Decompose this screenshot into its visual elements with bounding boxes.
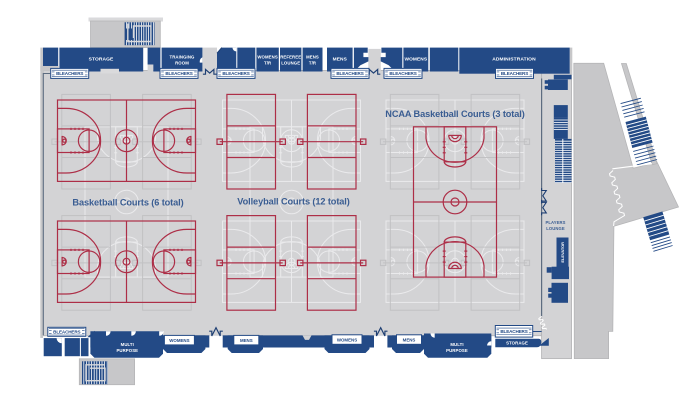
svg-text:TRAINGING: TRAINGING bbox=[169, 55, 195, 60]
svg-text:MENS: MENS bbox=[240, 338, 253, 343]
svg-text:MULTI: MULTI bbox=[121, 342, 134, 347]
svg-text:LOUNGE: LOUNGE bbox=[546, 226, 565, 231]
svg-text:MENS: MENS bbox=[403, 337, 416, 342]
svg-text:PURPOSE: PURPOSE bbox=[116, 348, 138, 353]
svg-text:ELEVATOR: ELEVATOR bbox=[560, 242, 565, 263]
svg-text:ADMINISTRATION: ADMINISTRATION bbox=[492, 56, 536, 62]
svg-text:BLEACHERS: BLEACHERS bbox=[500, 329, 527, 334]
svg-text:STORAGE: STORAGE bbox=[506, 341, 528, 346]
svg-text:WOMENS: WOMENS bbox=[337, 337, 357, 342]
svg-text:Basketball Courts (6 total): Basketball Courts (6 total) bbox=[72, 197, 183, 207]
svg-text:BLEACHERS: BLEACHERS bbox=[336, 71, 363, 76]
svg-text:BLEACHERS: BLEACHERS bbox=[53, 330, 80, 335]
svg-text:Volleyball Courts (12 total): Volleyball Courts (12 total) bbox=[237, 197, 349, 207]
svg-text:BLEACHERS: BLEACHERS bbox=[222, 71, 249, 76]
svg-text:WOMENS: WOMENS bbox=[404, 56, 427, 62]
svg-text:LOUNGE: LOUNGE bbox=[281, 61, 300, 66]
svg-text:BLEACHERS: BLEACHERS bbox=[501, 71, 528, 76]
svg-text:PURPOSE: PURPOSE bbox=[446, 348, 468, 353]
svg-text:WOMENS: WOMENS bbox=[169, 338, 189, 343]
svg-text:BLEACHERS: BLEACHERS bbox=[56, 71, 83, 76]
svg-text:PLAYERS: PLAYERS bbox=[545, 220, 565, 225]
svg-text:WOMENS: WOMENS bbox=[257, 55, 277, 60]
svg-text:BLEACHERS: BLEACHERS bbox=[389, 71, 416, 76]
svg-text:REFEREE: REFEREE bbox=[280, 55, 301, 60]
svg-text:MENS: MENS bbox=[333, 56, 348, 62]
svg-text:MULTI: MULTI bbox=[450, 342, 463, 347]
svg-text:BLEACHERS: BLEACHERS bbox=[165, 71, 192, 76]
svg-text:MENS: MENS bbox=[306, 55, 319, 60]
svg-text:ROOM: ROOM bbox=[175, 61, 189, 66]
svg-text:NCAA Basketball Courts (3 tota: NCAA Basketball Courts (3 total) bbox=[385, 109, 524, 119]
svg-text:STORAGE: STORAGE bbox=[89, 56, 114, 62]
svg-text:T/R: T/R bbox=[309, 61, 317, 66]
svg-text:T/R: T/R bbox=[264, 61, 272, 66]
